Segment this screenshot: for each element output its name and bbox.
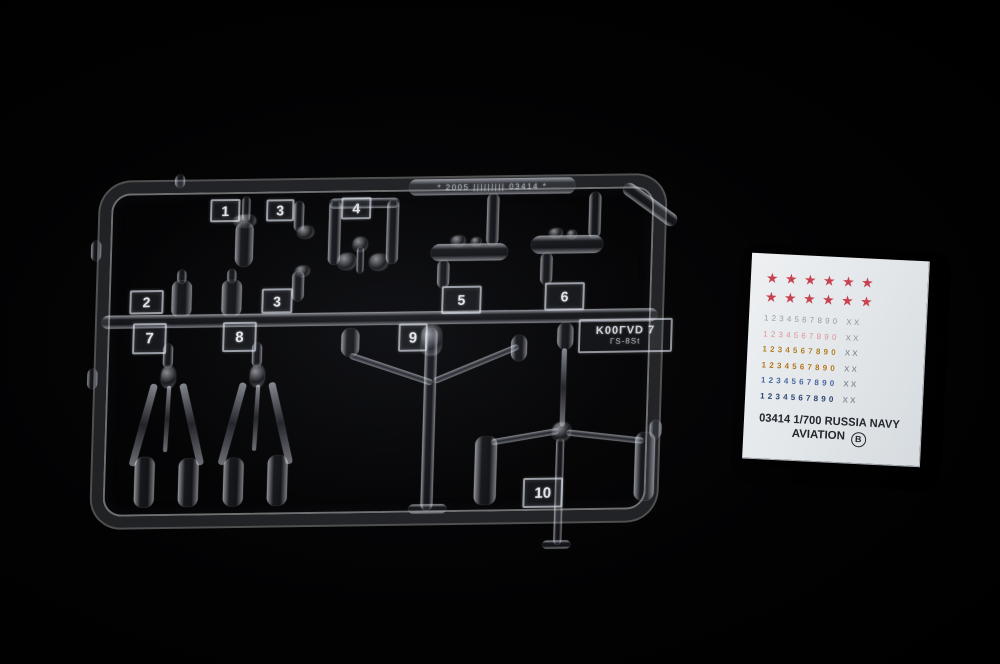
gate-stub [91, 241, 102, 261]
part7-foot [133, 457, 154, 507]
part6-fuselage [531, 235, 604, 254]
maker-plate: K00ΓVD 7 ΓS-8St [578, 318, 673, 353]
decal-xx: XX [845, 333, 860, 343]
part5-superstructure [471, 238, 481, 246]
part10-foot [633, 432, 655, 500]
part7-gate [163, 344, 174, 368]
maker-plate-line2: ΓS-8St [610, 337, 641, 346]
part8-foot [222, 458, 243, 506]
part6-superstructure [549, 228, 562, 237]
part5-superstructure [451, 236, 465, 246]
part8-gate [252, 343, 263, 367]
digits: 1234567890 [761, 360, 838, 373]
digits: 1234567890 [760, 391, 837, 404]
part4-wheel [337, 253, 355, 269]
gate-stub [87, 369, 98, 389]
part-tag-3b: 3 [261, 288, 293, 313]
sheet-letter-badge: B [850, 432, 866, 448]
part10-base [542, 540, 570, 548]
part3b-head [295, 266, 309, 276]
part6-hanger-bar [588, 192, 601, 238]
part-tag-10: 10 [522, 477, 563, 508]
part-tag-6: 6 [544, 282, 585, 311]
part1-bomb-body [235, 223, 254, 267]
digits: 1234567890 [763, 329, 840, 342]
part6-superstructure [567, 230, 576, 238]
decal-xx: XX [842, 395, 857, 405]
part6-support-leg [540, 253, 553, 285]
part10-foot [473, 436, 497, 504]
decal-xx: XX [843, 379, 858, 389]
part5-fuselage [431, 243, 508, 261]
part9-left-pylon [341, 328, 360, 356]
photo-canvas: * 2005 ||||||||| 03414 * 1 3 4 5 6 [0, 0, 1000, 664]
digits: 1234567890 [761, 375, 838, 388]
decal-xx: XX [845, 348, 860, 358]
decal-xx: XX [844, 364, 859, 374]
part5-support-leg [437, 260, 450, 288]
part5-hanger-bar [486, 193, 500, 245]
part2-bottle-body [171, 281, 192, 317]
decal-xx: XX [846, 317, 861, 327]
sprue-runner-frame: * 2005 ||||||||| 03414 * 1 3 4 5 6 [91, 175, 666, 528]
digits: 1234567890 [764, 313, 841, 326]
part-tag-7: 7 [132, 323, 167, 354]
part-tag-3a: 3 [266, 199, 295, 221]
part7-foot [177, 459, 198, 507]
decal-subtitle-text: AVIATION [791, 428, 845, 443]
gate-stub [175, 175, 185, 188]
part4-wheel [369, 254, 387, 270]
part3a-hook [297, 226, 313, 238]
part10-hanger [557, 322, 574, 349]
decal-sheet: ★★★★★★ ★★★★★★ 1234567890XX 1234567890XX … [742, 253, 930, 467]
part4-keyhole-stem [356, 247, 364, 273]
part4-right-bar [386, 200, 400, 264]
part9-base [408, 504, 446, 514]
part-tag-2: 2 [129, 290, 164, 314]
part-tag-5: 5 [441, 286, 482, 315]
part8-foot [266, 455, 287, 505]
digits: 1234567890 [762, 344, 839, 357]
part2-bottle-body [221, 280, 242, 316]
